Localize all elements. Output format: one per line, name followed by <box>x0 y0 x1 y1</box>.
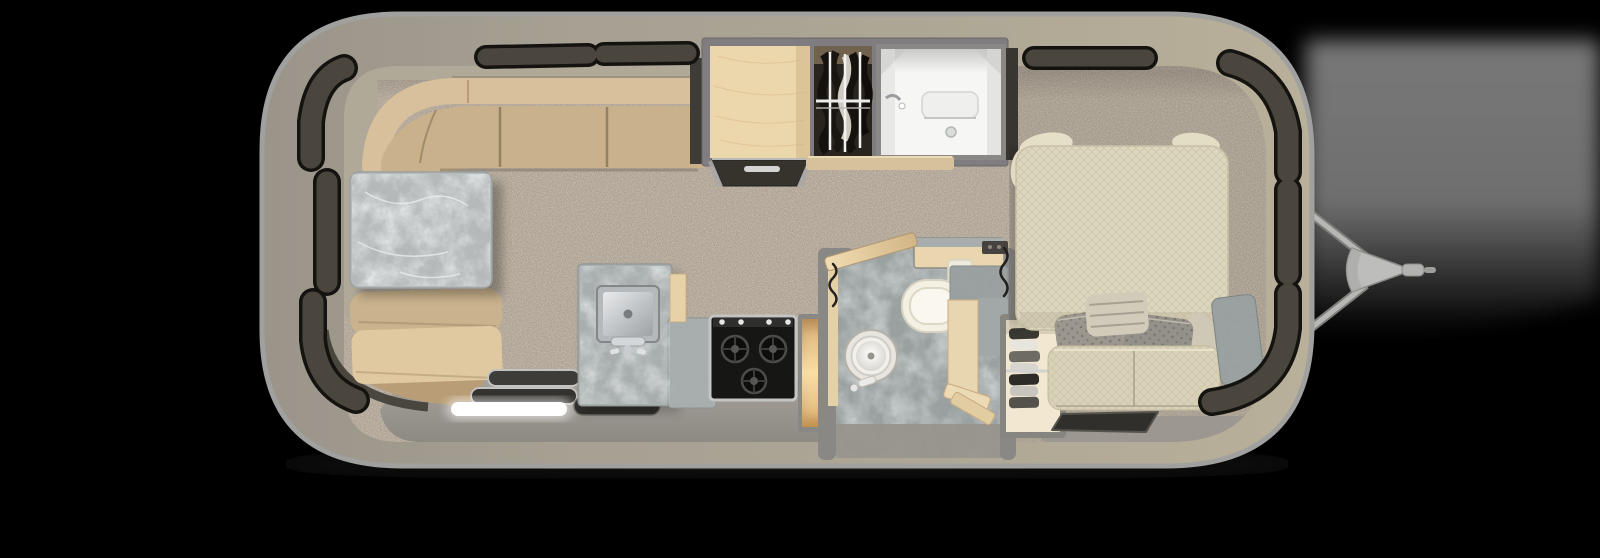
table-marble-grain <box>352 174 490 286</box>
cabinet-sill <box>806 156 954 170</box>
fridge-front <box>712 160 808 186</box>
wood-edge-shade <box>796 46 810 158</box>
shower-stall <box>876 44 1006 160</box>
stove-knob-4 <box>785 319 791 325</box>
counter-wood-trim <box>670 274 686 322</box>
led-entry-step <box>451 402 567 416</box>
hanging-wardrobe <box>814 46 872 158</box>
sink-drain-bath <box>868 353 875 360</box>
vanity-item-1 <box>988 245 992 249</box>
faucet-stem <box>624 345 631 359</box>
divider-wall-right <box>1006 48 1018 160</box>
stove-knob-1 <box>719 319 725 325</box>
stove-knob-strip <box>713 318 793 327</box>
vanity-item-2 <box>997 245 1001 249</box>
hitch-coupler <box>1402 264 1424 276</box>
range-stove <box>710 316 796 400</box>
foot-bench <box>1048 346 1220 410</box>
shower-control <box>899 103 905 109</box>
floorplan-stage <box>0 0 1600 558</box>
shower-drain <box>946 127 956 137</box>
floorplan-canvas <box>0 0 1600 558</box>
shower-corner-seat <box>922 92 978 118</box>
bathroom-floor-lower <box>836 424 1004 458</box>
stove-knob-2 <box>738 319 744 325</box>
faucet-bar <box>611 337 645 346</box>
entry-tread-1 <box>488 370 580 386</box>
tan-cabinet <box>948 300 978 394</box>
dinette-table <box>350 172 502 296</box>
window-top-1 <box>486 55 588 57</box>
sink-faucet-knob <box>851 385 858 392</box>
throw-pillow <box>1085 291 1150 337</box>
hitch-coupler-tip <box>1424 267 1436 273</box>
bedroom-floor-mat <box>1052 412 1158 432</box>
refrigerator-cabinet <box>708 46 812 186</box>
sink-drain <box>624 310 633 319</box>
stove-knob-3 <box>766 319 772 325</box>
bathroom-wood-strip <box>828 258 838 406</box>
fridge-handle <box>744 166 780 172</box>
window-top-2 <box>604 53 688 54</box>
sofa-seat-cushions <box>412 137 698 166</box>
counter-wing-grain <box>670 320 714 406</box>
mid-cabinet-block <box>690 38 1018 186</box>
